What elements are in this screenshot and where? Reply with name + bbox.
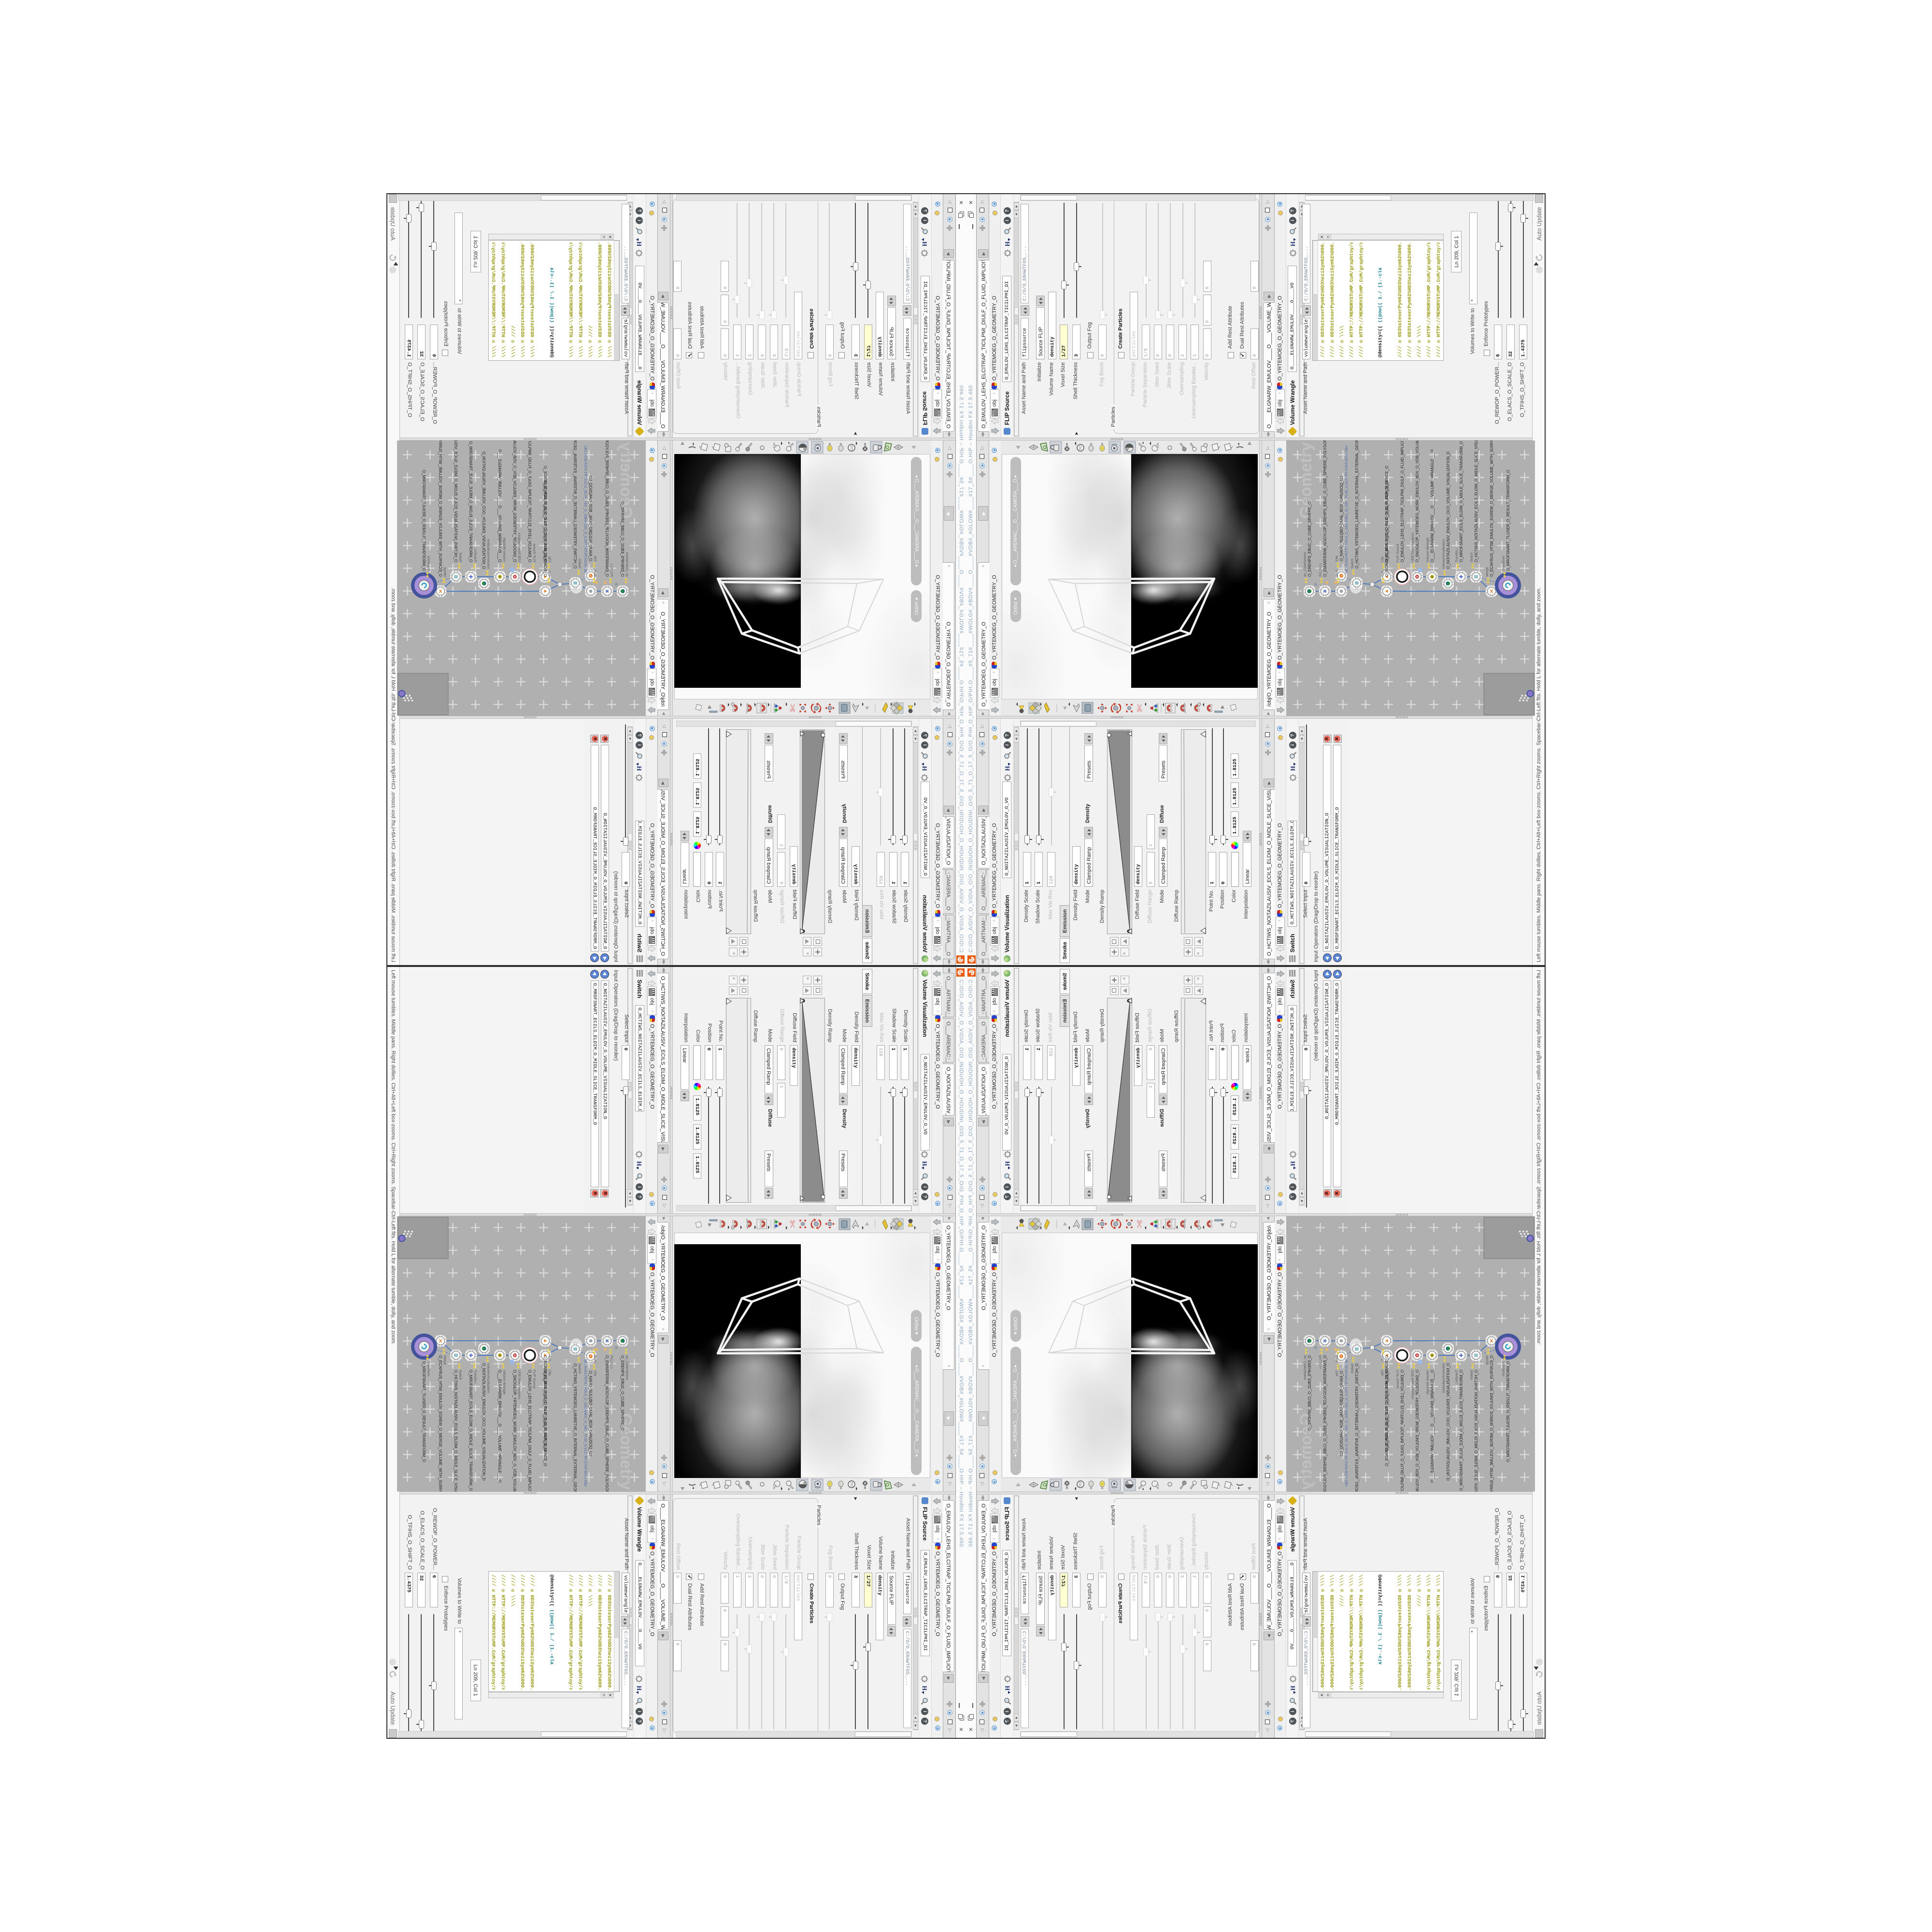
svg-text:O_MROFSNART_ECILS_ELDIM_O_MIDL: O_MROFSNART_ECILS_ELDIM_O_MIDLE_SLICE_TR… xyxy=(469,441,473,562)
svg-text:Geometry: Geometry xyxy=(1297,442,1315,519)
svg-text:Clip: Clip xyxy=(548,1355,551,1361)
svg-text:Transform: Transform xyxy=(1502,555,1506,571)
svg-text:O_MROFSNART_TLUSER_O_RESULT_TR: O_MROFSNART_TLUSER_O_RESULT_TRANSFORM_O xyxy=(422,1361,426,1462)
svg-text:O_NOITAZILAUSIV_EMULOV_OCO_VOL: O_NOITAZILAUSIV_EMULOV_OCO_VOLUME_VISUAL… xyxy=(482,1363,486,1481)
svg-text:Bool: Bool xyxy=(1335,570,1339,577)
svg-text:Merge: Merge xyxy=(1486,567,1489,577)
svg-text:VDB from Polygons: VDB from Polygons xyxy=(1411,532,1415,562)
svg-text:PolyWire: PolyWire xyxy=(1319,1355,1322,1369)
svg-text:Volume Wrangle: Volume Wrangle xyxy=(1426,1370,1430,1394)
svg-text:Transform: Transform xyxy=(1455,1370,1459,1385)
svg-text:O_MROFSNART_TLUSER_O_RESULT_TR: O_MROFSNART_TLUSER_O_RESULT_TRANSFORM_O xyxy=(1506,1361,1510,1462)
svg-text:O_HCTIWS_YRTEMOEG_LANRETXE_O_I: O_HCTIWS_YRTEMOEG_LANRETXE_O_INTERNAL_EX… xyxy=(1355,1364,1359,1492)
svg-text:FLIP Source: FLIP Source xyxy=(1396,1370,1400,1389)
svg-text:O_HCTIWS_NOITAZILAUSIV_ECILS_E: O_HCTIWS_NOITAZILAUSIV_ECILS_ELDIM_O_MID… xyxy=(454,1370,458,1492)
svg-text:O_ECAFRUS_BUS_PILC_O_CLIP_SUB_: O_ECAFRUS_BUS_PILC_O_CLIP_SUB_SURFACE_O xyxy=(1385,1355,1389,1451)
svg-text:Clip: Clip xyxy=(1381,571,1384,577)
svg-text:Transform: Transform xyxy=(1502,1361,1506,1377)
svg-text:Geometry: Geometry xyxy=(617,442,635,519)
svg-text:PolyWire: PolyWire xyxy=(610,563,613,577)
svg-text:Switch: Switch xyxy=(578,1364,581,1374)
svg-text:O_NOITAZILAUSIV_EMULOV_OCO_VOL: O_NOITAZILAUSIV_EMULOV_OCO_VOLUME_VISUAL… xyxy=(482,451,486,569)
svg-text:O_MROFSNART_ECILS_ELDIM_O_MIDL: O_MROFSNART_ECILS_ELDIM_O_MIDLE_SLICE_TR… xyxy=(1459,441,1463,562)
svg-text:PolyWire: PolyWire xyxy=(610,1355,613,1369)
svg-text:Clip: Clip xyxy=(1381,556,1384,562)
svg-text:Switch: Switch xyxy=(1351,1364,1354,1374)
svg-text:File: File xyxy=(593,556,597,561)
svg-text:O___ELGNARW_EMULOV___O____VOLU: O___ELGNARW_EMULOV___O____VOLUME_WRANGLE… xyxy=(497,449,502,562)
svg-text:O_ECAFRUS_BUS_PILC_O_CLIP_SUB_: O_ECAFRUS_BUS_PILC_O_CLIP_SUB_SURFACE_O xyxy=(543,1355,547,1451)
svg-text:VolumeVisualization: VolumeVisualization xyxy=(1442,539,1446,569)
svg-text:Volume Wrangle: Volume Wrangle xyxy=(1426,538,1430,562)
svg-text:O_ECAFRUS_HTIW_EMULOV_EGREM_O_: O_ECAFRUS_HTIW_EMULOV_EGREM_O_MERGE_VOLU… xyxy=(438,440,442,577)
svg-text:Switch: Switch xyxy=(458,1370,462,1380)
svg-text:PolyWire: PolyWire xyxy=(1319,563,1322,577)
svg-text:O___ELGNARW_EMULOV___O____VOLU: O___ELGNARW_EMULOV___O____VOLUME_WRANGLE… xyxy=(497,1370,502,1483)
svg-text:Clip: Clip xyxy=(1381,1370,1384,1376)
svg-text:VolumeVisualization: VolumeVisualization xyxy=(486,1363,490,1393)
svg-text:Transform: Transform xyxy=(473,547,477,562)
svg-text:Bool: Bool xyxy=(593,1355,597,1362)
svg-text:O_NOITAZILAUSIV_EMULOV_OCO_VOL: O_NOITAZILAUSIV_EMULOV_OCO_VOLUME_VISUAL… xyxy=(1446,1363,1450,1481)
svg-text:O_HCTIWS_NOITAZILAUSIV_ECILS_E: O_HCTIWS_NOITAZILAUSIV_ECILS_ELDIM_O_MID… xyxy=(1474,440,1478,562)
svg-text:Clip: Clip xyxy=(548,556,551,562)
svg-text:O_EMARFERIW_NOGYLOP_EREHPS_EBU: O_EMARFERIW_NOGYLOP_EREHPS_EBUC_O_CUBE_S… xyxy=(1323,1355,1327,1492)
svg-text:VolumeVisualization: VolumeVisualization xyxy=(1442,1363,1446,1393)
svg-text:O_ECAFRUS_HTIW_EMULOV_EGREM_O_: O_ECAFRUS_HTIW_EMULOV_EGREM_O_MERGE_VOLU… xyxy=(1490,440,1494,577)
svg-text:Clip: Clip xyxy=(548,571,551,577)
svg-text:JBO.AVD3.PETS.TFOLS_O_GE2ANEG_: JBO.AVD3.PETS.TFOLS_O_GE2ANEG_O_GEV_PL55… xyxy=(583,1358,587,1487)
svg-text:O_EREHPS_EBUC_O_CUBE_SPHERE_O: O_EREHPS_EBUC_O_CUBE_SPHERE_O xyxy=(1307,501,1312,577)
svg-text:O_SNOGILOP_YRTEMOEG_MORF_EMULO: O_SNOGILOP_YRTEMOEG_MORF_EMULOV_BDV_O_VD… xyxy=(1415,1370,1420,1492)
svg-text:O_NAUQ_SULQBO_DUAL_BOX_GANJSOQ: O_NAUQ_SULQBO_DUAL_BOX_GANJSOQ_LD xyxy=(588,476,593,561)
svg-text:O_EMARFERIW_NOGYLOP_EREHPS_EBU: O_EMARFERIW_NOGYLOP_EREHPS_EBUC_O_CUBE_S… xyxy=(605,440,609,577)
svg-text:Switch: Switch xyxy=(458,552,462,562)
svg-text:O_SNOGILOP_YRTEMOEG_MORF_EMULO: O_SNOGILOP_YRTEMOEG_MORF_EMULOV_BDV_O_VD… xyxy=(512,1370,517,1492)
svg-text:O___ELGNARW_EMULOV___O____VOLU: O___ELGNARW_EMULOV___O____VOLUME_WRANGLE… xyxy=(1430,1370,1435,1483)
svg-text:O_HCTIWS_YRTEMOEG_LANRETXE_O_I: O_HCTIWS_YRTEMOEG_LANRETXE_O_INTERNAL_EX… xyxy=(573,440,577,568)
svg-text:O___ELGNARW_EMULOV___O____VOLU: O___ELGNARW_EMULOV___O____VOLUME_WRANGLE… xyxy=(1430,449,1435,562)
svg-text:FLIP Source: FLIP Source xyxy=(1396,543,1400,562)
svg-text:O_ECAFRUS_BUS_PILC_O_CLIP_SUB_: O_ECAFRUS_BUS_PILC_O_CLIP_SUB_SURFACE_O xyxy=(1385,481,1389,577)
svg-text:O_MROFSNART_TLUSER_O_RESULT_TR: O_MROFSNART_TLUSER_O_RESULT_TRANSFORM_O xyxy=(1506,470,1510,571)
svg-text:O_EMULOV_LEHS_ELCITRAP_TICILPM: O_EMULOV_LEHS_ELCITRAP_TICILPMI_DIULF_O_… xyxy=(527,1370,532,1492)
svg-text:Switch: Switch xyxy=(1351,558,1354,568)
svg-text:FLIP Source: FLIP Source xyxy=(532,1370,536,1389)
svg-text:O_EMULOV_LEHS_ELCITRAP_TICILPM: O_EMULOV_LEHS_ELCITRAP_TICILPMI_DIULF_O_… xyxy=(527,440,532,562)
svg-text:O_EREHPS_EBUC_O_CUBE_SPHERE_O: O_EREHPS_EBUC_O_CUBE_SPHERE_O xyxy=(620,501,625,577)
svg-text:O_HCTIWS_NOITAZILAUSIV_ECILS_E: O_HCTIWS_NOITAZILAUSIV_ECILS_ELDIM_O_MID… xyxy=(454,440,458,562)
svg-text:O_EMULOV_LEHS_ELCITRAP_TICILPM: O_EMULOV_LEHS_ELCITRAP_TICILPMI_DIULF_O_… xyxy=(1400,1370,1405,1492)
svg-text:O_HCTIWS_NOITAZILAUSIV_ECILS_E: O_HCTIWS_NOITAZILAUSIV_ECILS_ELDIM_O_MID… xyxy=(1474,1370,1478,1492)
svg-text:Transform: Transform xyxy=(426,1361,430,1377)
svg-text:O_SNOGILOP_YRTEMOEG_MORF_EMULO: O_SNOGILOP_YRTEMOEG_MORF_EMULOV_BDV_O_VD… xyxy=(512,440,517,562)
svg-text:O_EMULOV_LEHS_ELCITRAP_TICILPM: O_EMULOV_LEHS_ELCITRAP_TICILPMI_DIULF_O_… xyxy=(1400,440,1405,562)
svg-text:O_ECAFRUS_HTIW_EMULOV_EGREM_O_: O_ECAFRUS_HTIW_EMULOV_EGREM_O_MERGE_VOLU… xyxy=(1490,1355,1494,1492)
svg-text:Geometry: Geometry xyxy=(617,1413,635,1490)
svg-text:Transform: Transform xyxy=(426,555,430,571)
svg-text:Volume Wrangle: Volume Wrangle xyxy=(502,1370,506,1394)
svg-text:O_EMARFERIW_NOGYLOP_EREHPS_EBU: O_EMARFERIW_NOGYLOP_EREHPS_EBUC_O_CUBE_S… xyxy=(605,1355,609,1492)
svg-text:O_EREHPS_EBUC_O_CUBE_SPHERE_O: O_EREHPS_EBUC_O_CUBE_SPHERE_O xyxy=(1307,1355,1312,1431)
svg-text:O_EMARFERIW_NOGYLOP_EREHPS_EBU: O_EMARFERIW_NOGYLOP_EREHPS_EBUC_O_CUBE_S… xyxy=(1323,440,1327,577)
svg-text:Switch: Switch xyxy=(1470,552,1474,562)
svg-text:an_CubeSphere: an_CubeSphere xyxy=(625,1355,628,1380)
svg-text:O_ECAFRUS_HTIW_EMULOV_EGREM_O_: O_ECAFRUS_HTIW_EMULOV_EGREM_O_MERGE_VOLU… xyxy=(438,1355,442,1492)
svg-text:O_NAUQ_SULQBO_DUAL_BOX_GANJSOQ: O_NAUQ_SULQBO_DUAL_BOX_GANJSOQ_LD xyxy=(1339,476,1344,561)
svg-text:JBO.AVD3.PETS.TFOLS_O_GE2ANEG_: JBO.AVD3.PETS.TFOLS_O_GE2ANEG_O_GEV_PL55… xyxy=(1345,1358,1349,1487)
svg-text:Clip: Clip xyxy=(548,1370,551,1376)
svg-text:Bool: Bool xyxy=(593,570,597,577)
svg-text:O_ECAFRUS_BUS_PILC_O_CLIP_SUB_: O_ECAFRUS_BUS_PILC_O_CLIP_SUB_SURFACE_O xyxy=(543,481,547,577)
svg-text:VDB from Polygons: VDB from Polygons xyxy=(517,1370,521,1400)
svg-text:File: File xyxy=(1335,556,1339,561)
svg-text:Bool: Bool xyxy=(1335,1355,1339,1362)
svg-text:VDB from Polygons: VDB from Polygons xyxy=(1411,1370,1415,1400)
svg-text:O_MROFSNART_ECILS_ELDIM_O_MIDL: O_MROFSNART_ECILS_ELDIM_O_MIDLE_SLICE_TR… xyxy=(469,1370,473,1491)
svg-text:File: File xyxy=(1335,1371,1339,1376)
svg-text:VolumeVisualization: VolumeVisualization xyxy=(486,539,490,569)
svg-text:Merge: Merge xyxy=(1486,1355,1489,1365)
svg-text:O_MROFSNART_ECILS_ELDIM_O_MIDL: O_MROFSNART_ECILS_ELDIM_O_MIDLE_SLICE_TR… xyxy=(1459,1370,1463,1491)
svg-text:Transform: Transform xyxy=(1455,547,1459,562)
svg-text:an_CubeSphere: an_CubeSphere xyxy=(1304,1355,1307,1380)
svg-text:O_NAUQ_SULQBO_DUAL_BOX_GANJSOQ: O_NAUQ_SULQBO_DUAL_BOX_GANJSOQ_LD xyxy=(588,1371,593,1456)
svg-text:O_HCTIWS_YRTEMOEG_LANRETXE_O_I: O_HCTIWS_YRTEMOEG_LANRETXE_O_INTERNAL_EX… xyxy=(573,1364,577,1492)
svg-text:an_CubeSphere: an_CubeSphere xyxy=(625,552,628,577)
svg-text:an_CubeSphere: an_CubeSphere xyxy=(1304,552,1307,577)
svg-text:JBO.AVD3.PETS.TFOLS_O_GE2ANEG_: JBO.AVD3.PETS.TFOLS_O_GE2ANEG_O_GEV_PL55… xyxy=(1345,445,1349,574)
svg-text:O_NAUQ_SULQBO_DUAL_BOX_GANJSOQ: O_NAUQ_SULQBO_DUAL_BOX_GANJSOQ_LD xyxy=(1339,1371,1344,1456)
svg-text:File: File xyxy=(593,1371,597,1376)
svg-text:O_HCTIWS_YRTEMOEG_LANRETXE_O_I: O_HCTIWS_YRTEMOEG_LANRETXE_O_INTERNAL_EX… xyxy=(1355,440,1359,568)
svg-text:Switch: Switch xyxy=(1470,1370,1474,1380)
svg-text:Merge: Merge xyxy=(443,567,446,577)
svg-text:O_MROFSNART_TLUSER_O_RESULT_TR: O_MROFSNART_TLUSER_O_RESULT_TRANSFORM_O xyxy=(422,470,426,571)
svg-text:VDB from Polygons: VDB from Polygons xyxy=(517,532,521,562)
svg-text:FLIP Source: FLIP Source xyxy=(532,543,536,562)
svg-text:Merge: Merge xyxy=(443,1355,446,1365)
svg-text:O_SNOGILOP_YRTEMOEG_MORF_EMULO: O_SNOGILOP_YRTEMOEG_MORF_EMULOV_BDV_O_VD… xyxy=(1415,440,1420,562)
svg-text:Switch: Switch xyxy=(578,558,581,568)
svg-text:Volume Wrangle: Volume Wrangle xyxy=(502,538,506,562)
svg-text:O_EREHPS_EBUC_O_CUBE_SPHERE_O: O_EREHPS_EBUC_O_CUBE_SPHERE_O xyxy=(620,1355,625,1431)
svg-text:O_NOITAZILAUSIV_EMULOV_OCO_VOL: O_NOITAZILAUSIV_EMULOV_OCO_VOLUME_VISUAL… xyxy=(1446,451,1450,569)
svg-text:Geometry: Geometry xyxy=(1297,1413,1315,1490)
svg-text:JBO.AVD3.PETS.TFOLS_O_GE2ANEG_: JBO.AVD3.PETS.TFOLS_O_GE2ANEG_O_GEV_PL55… xyxy=(583,445,587,574)
svg-text:Transform: Transform xyxy=(473,1370,477,1385)
svg-text:Clip: Clip xyxy=(1381,1355,1384,1361)
